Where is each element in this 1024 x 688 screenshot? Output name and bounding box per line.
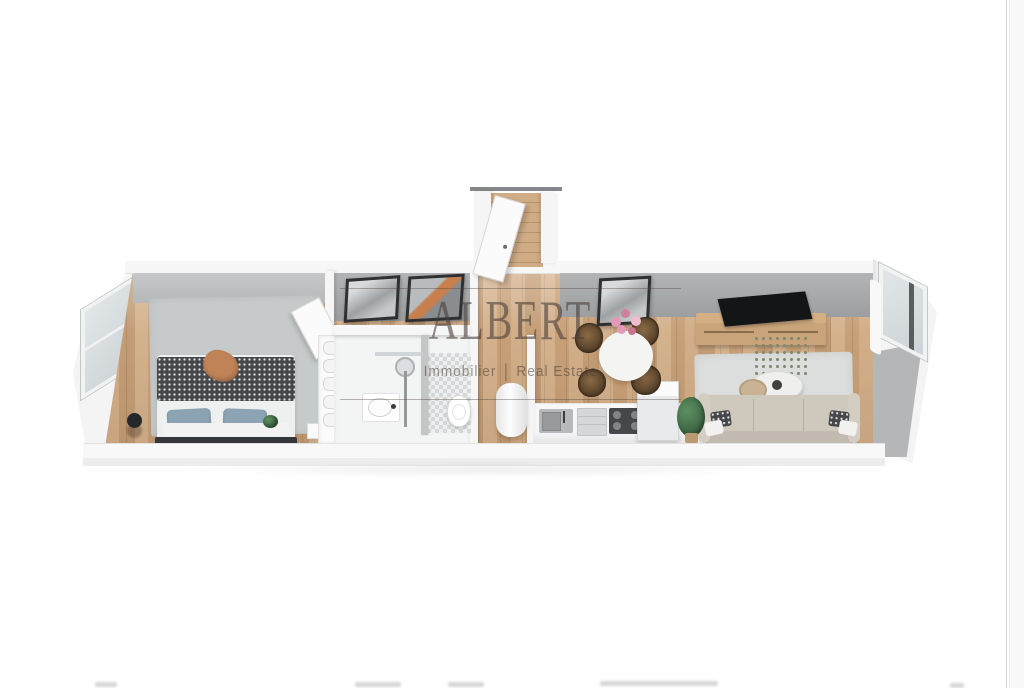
window-blind-bar: [909, 282, 914, 351]
corner-plant: [677, 397, 705, 437]
console-drawer-line: [768, 331, 818, 333]
door-handle: [503, 244, 508, 249]
sofa-pillow-white-left: [704, 419, 725, 436]
plan-shadow: [89, 466, 881, 480]
sofa-pillow-white-right: [838, 420, 858, 437]
floor-lamp: [127, 413, 142, 428]
wall-art-frame-2: [405, 274, 465, 323]
page-right-strip: [1009, 0, 1024, 688]
kitchen-faucet: [563, 411, 565, 423]
flower-bouquet: [609, 307, 645, 341]
dining-chair-3: [578, 369, 606, 397]
cropped-text-marks: [355, 682, 401, 687]
cropped-text-marks: [448, 682, 484, 687]
drawer-line: [578, 417, 606, 425]
wall-bathroom-hall: [470, 271, 478, 447]
wall-art-frame-1: [344, 275, 401, 323]
kitchen-sink: [539, 409, 573, 433]
page-right-edge-line-2: [1009, 0, 1010, 688]
sink-bowl: [542, 412, 561, 431]
flower: [628, 327, 636, 335]
burner: [613, 422, 621, 430]
bathroom-top-wall: [334, 325, 470, 335]
curtain: [870, 278, 881, 355]
flower: [621, 309, 630, 318]
bathroom-sink: [362, 393, 400, 422]
wall-bath-wc: [421, 335, 428, 435]
cropped-text-marks: [600, 681, 718, 686]
flower: [631, 316, 641, 326]
sofa: [703, 395, 855, 443]
burner: [613, 411, 621, 419]
water-heater: [496, 383, 527, 437]
page-right-edge-line: [1006, 0, 1007, 688]
sink-basin: [368, 398, 392, 417]
shower-glass: [375, 352, 423, 356]
shower-pole: [404, 371, 407, 427]
drawer-line: [578, 409, 606, 417]
console-drawer-line: [704, 331, 754, 333]
sofa-seam: [803, 399, 804, 431]
apartment-plan: [75, 185, 935, 485]
toilet-seat: [452, 404, 466, 420]
toilet: [447, 395, 471, 427]
table-vase: [772, 380, 782, 390]
kitchen-drawers: [577, 408, 607, 436]
entry-right-jamb: [541, 193, 558, 263]
floor-plan-render: ALBERT Immobilier | Real Estate: [0, 0, 1024, 688]
dining-chair-1: [575, 323, 603, 353]
corner-plant-pot: [685, 433, 698, 443]
cropped-text-marks: [950, 683, 964, 688]
cropped-text-marks: [95, 682, 117, 687]
flower: [617, 325, 626, 334]
sink-faucet: [391, 404, 396, 409]
sofa-seam: [753, 399, 754, 431]
bottom-wall-outer-face: [83, 458, 885, 466]
bedroom-plant: [263, 415, 278, 428]
